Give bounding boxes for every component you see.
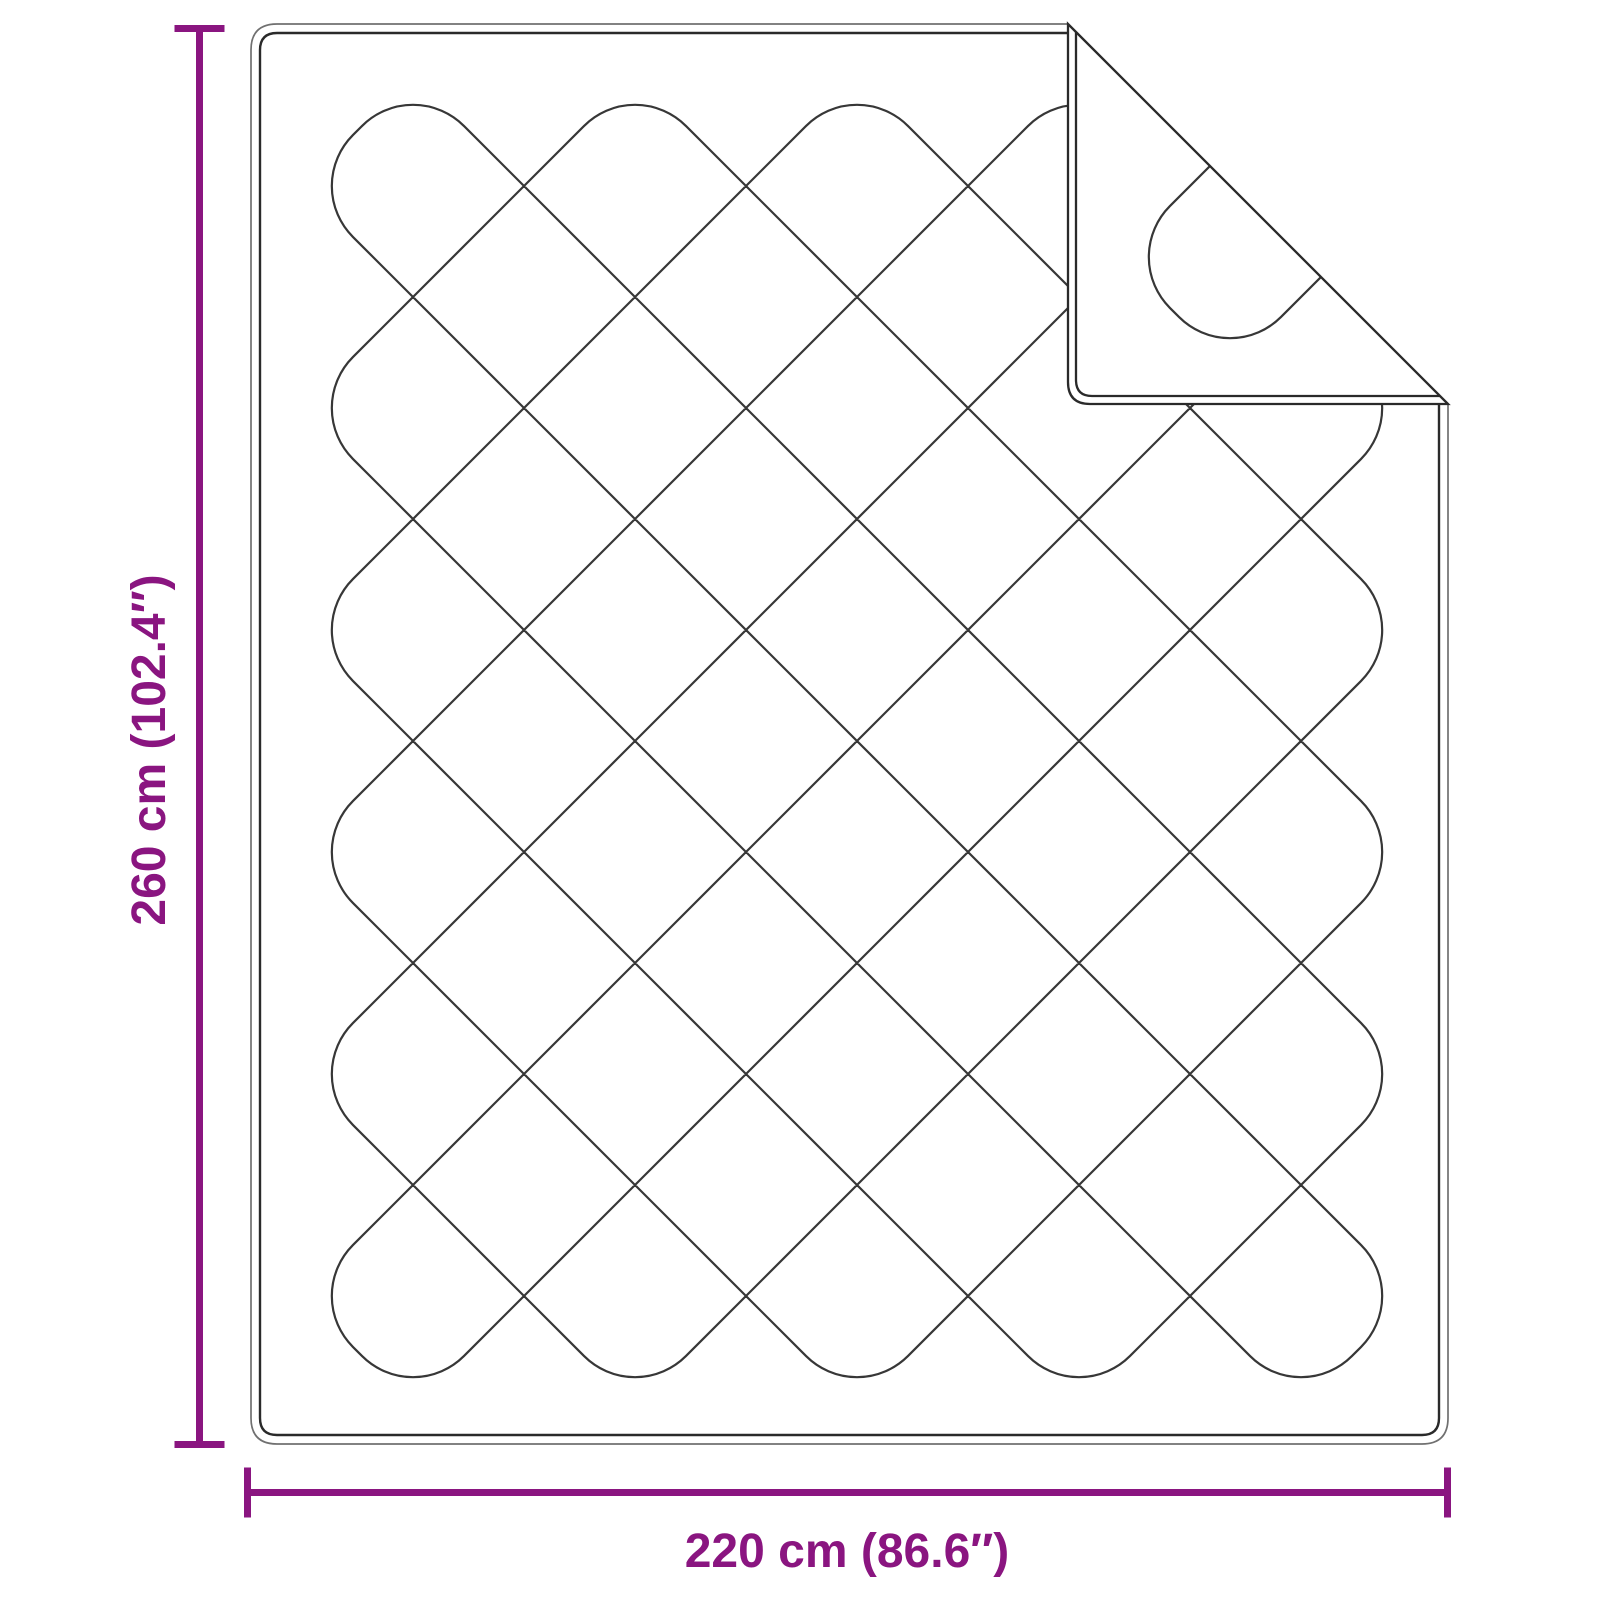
- height-dimension-label: 260 cm (102.4″): [123, 574, 176, 925]
- height-dimension: 260 cm (102.4″): [123, 29, 225, 1445]
- diagram-canvas: 260 cm (102.4″) 220 cm (86.6″): [0, 0, 1600, 1600]
- width-dimension: 220 cm (86.6″): [248, 1468, 1448, 1579]
- duvet-illustration: [251, 0, 1600, 1444]
- folded-corner: [1068, 0, 1600, 404]
- width-dimension-label: 220 cm (86.6″): [685, 1525, 1010, 1578]
- duvet-dimension-diagram: 260 cm (102.4″) 220 cm (86.6″): [0, 0, 1600, 1600]
